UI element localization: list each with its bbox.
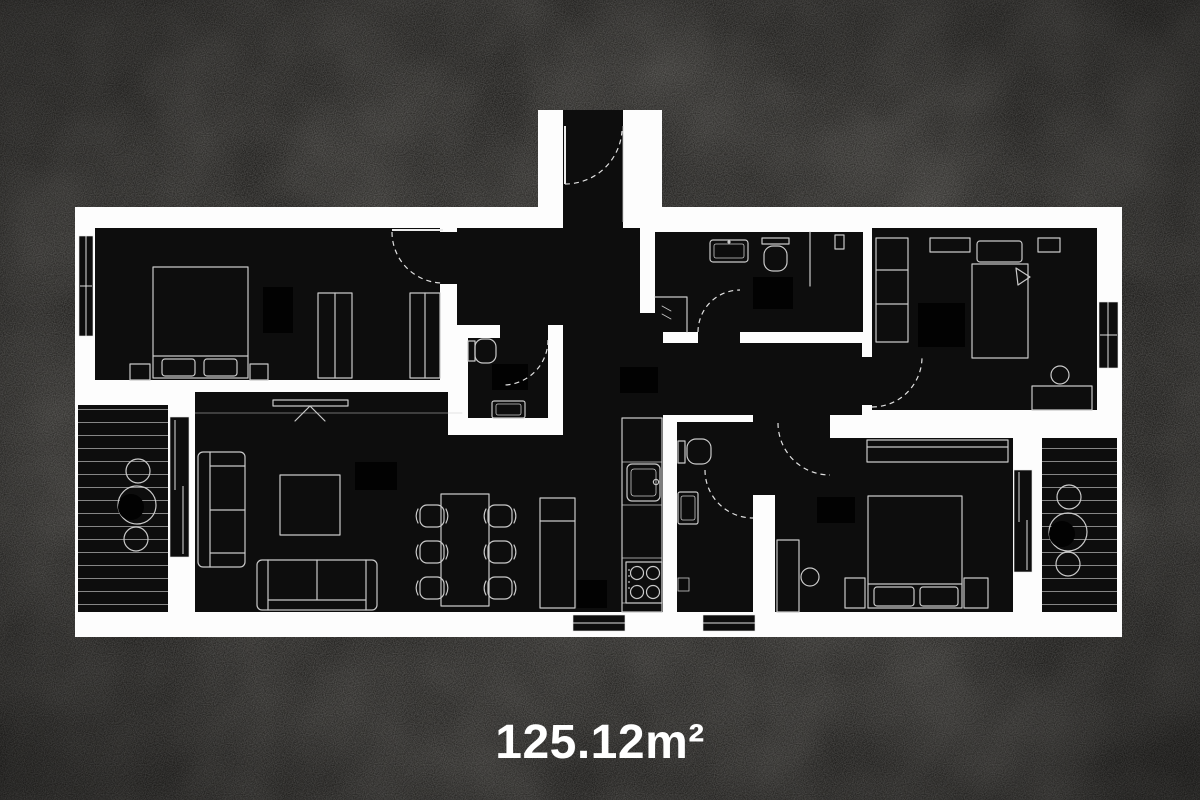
media-unit	[355, 462, 397, 490]
doorway-bathroom-top	[698, 330, 740, 344]
sliding-door	[1014, 470, 1032, 572]
rug	[753, 277, 793, 309]
rug	[577, 580, 607, 608]
balcony-left	[78, 405, 168, 612]
room-bedroom-top-right	[872, 228, 1097, 410]
sliding-door	[170, 417, 189, 557]
doorway-bedroom-left	[440, 232, 457, 284]
rug	[263, 287, 293, 333]
area-label: 125.12m²	[495, 716, 704, 769]
floorplan-canvas: 125.12m²	[0, 0, 1200, 800]
room-entry-corridor	[563, 110, 623, 230]
corridor-vestibule	[753, 415, 830, 445]
room-living-dining	[195, 392, 663, 612]
doorway-bathroom-bottom	[750, 445, 778, 495]
rug	[492, 364, 528, 390]
doorway-bedroom-top-right	[860, 357, 872, 405]
deck-table-top	[118, 494, 144, 520]
balcony-right	[1042, 438, 1117, 612]
rug	[620, 367, 658, 393]
floor-plan-svg: 125.12m²	[0, 0, 1200, 800]
deck-table-top	[1049, 521, 1075, 547]
doorway-wc	[500, 325, 548, 340]
rug	[918, 303, 965, 347]
rug	[817, 497, 855, 523]
